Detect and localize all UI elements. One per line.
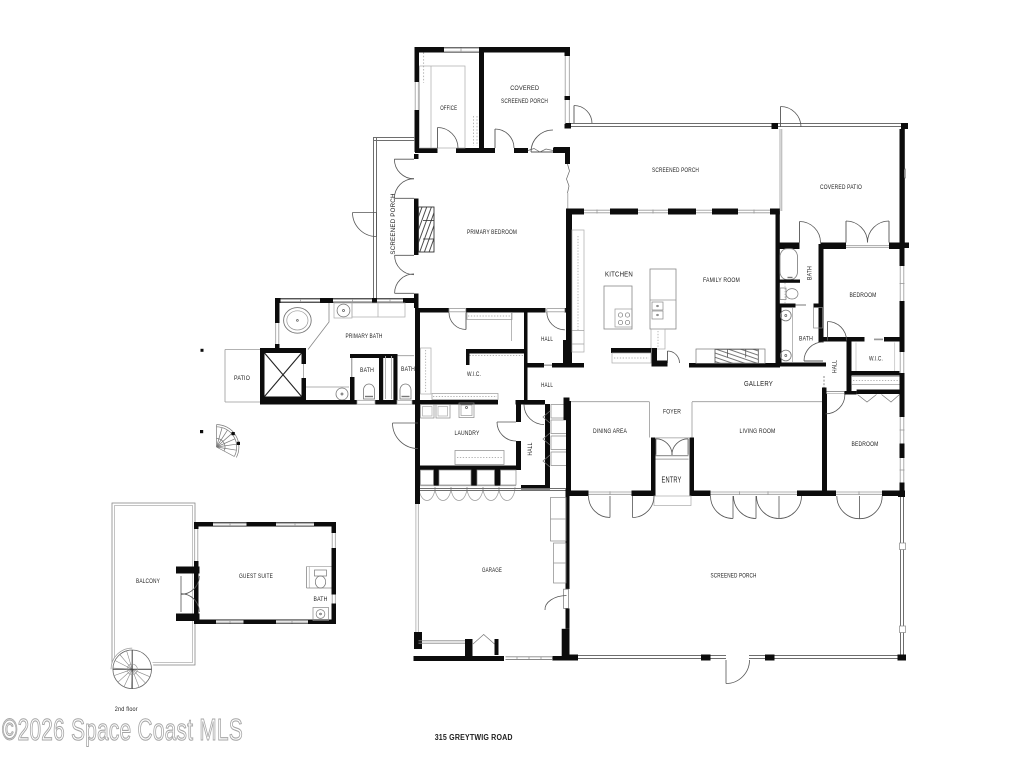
svg-text:GARAGE: GARAGE xyxy=(482,567,502,574)
svg-text:SCREENED PORCH: SCREENED PORCH xyxy=(501,98,548,105)
svg-text:DINING AREA: DINING AREA xyxy=(593,428,627,435)
svg-text:PRIMARY BEDROOM: PRIMARY BEDROOM xyxy=(467,229,517,236)
svg-text:FAMILY ROOM: FAMILY ROOM xyxy=(703,277,740,284)
svg-text:BEDROOM: BEDROOM xyxy=(850,292,877,299)
svg-text:SCREENED PORCH: SCREENED PORCH xyxy=(711,573,757,580)
svg-text:FOYER: FOYER xyxy=(663,409,681,416)
svg-text:ENTRY: ENTRY xyxy=(662,476,682,485)
svg-text:GALLERY: GALLERY xyxy=(744,381,773,388)
svg-text:COVERED: COVERED xyxy=(510,85,539,92)
svg-text:HALL: HALL xyxy=(541,336,553,343)
svg-text:PATIO: PATIO xyxy=(234,375,250,382)
svg-text:KITCHEN: KITCHEN xyxy=(605,271,633,278)
svg-text:GUEST SUITE: GUEST SUITE xyxy=(239,573,273,580)
svg-text:BATH: BATH xyxy=(314,597,328,603)
svg-text:LIVING ROOM: LIVING ROOM xyxy=(740,428,776,435)
svg-text:BATH: BATH xyxy=(808,266,814,280)
svg-text:W.I.C.: W.I.C. xyxy=(869,356,883,363)
svg-text:BATH: BATH xyxy=(401,366,415,373)
svg-text:SCREENED PORCH: SCREENED PORCH xyxy=(652,167,699,174)
svg-text:HALL: HALL xyxy=(528,442,534,455)
svg-text:PRIMARY BATH: PRIMARY BATH xyxy=(346,333,383,340)
svg-text:BALCONY: BALCONY xyxy=(136,578,160,585)
svg-text:OFFICE: OFFICE xyxy=(440,105,457,112)
svg-text:315 GREYTWIG ROAD: 315 GREYTWIG ROAD xyxy=(435,733,513,742)
svg-text:HALL: HALL xyxy=(541,382,553,389)
svg-text:COVERED PATIO: COVERED PATIO xyxy=(820,184,862,191)
svg-text:BATH: BATH xyxy=(360,367,374,374)
svg-text:LAUNDRY: LAUNDRY xyxy=(455,430,480,437)
svg-text:W.I.C.: W.I.C. xyxy=(467,371,481,378)
svg-text:BATH: BATH xyxy=(799,336,813,343)
svg-text:HALL: HALL xyxy=(833,360,839,373)
svg-text:©2026 Space Coast MLS: ©2026 Space Coast MLS xyxy=(2,713,243,747)
svg-text:SCREENED PORCH: SCREENED PORCH xyxy=(390,193,397,254)
svg-text:BEDROOM: BEDROOM xyxy=(852,441,879,448)
